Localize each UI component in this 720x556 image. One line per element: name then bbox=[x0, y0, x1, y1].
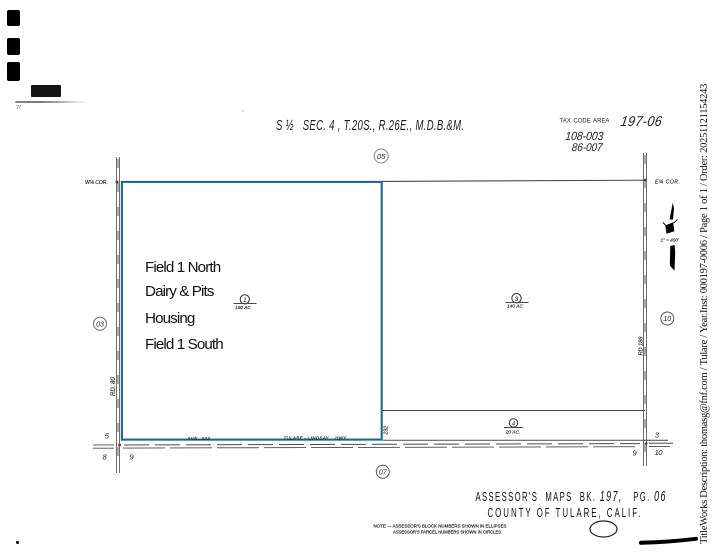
svg-text:NOTE — ASSESSOR'S BLOCK NUMBER: NOTE — ASSESSOR'S BLOCK NUMBERS SHOWN IN… bbox=[374, 523, 507, 528]
svg-text:COUNTY OF TULARE, CALIF.: COUNTY OF TULARE, CALIF. bbox=[488, 506, 643, 520]
svg-text:140 AC: 140 AC bbox=[507, 304, 523, 310]
svg-text:5: 5 bbox=[105, 432, 110, 441]
svg-text:1" = 400': 1" = 400' bbox=[661, 237, 680, 242]
svg-text:10: 10 bbox=[663, 316, 671, 323]
svg-text:TAX CODE AREA: TAX CODE AREA bbox=[560, 119, 610, 125]
svg-text:ASSESSOR'S PARCEL NUMBERS SHOW: ASSESSOR'S PARCEL NUMBERS SHOWN IN CIRCL… bbox=[393, 530, 501, 535]
svg-text:W¼ COR.: W¼ COR. bbox=[85, 180, 108, 186]
svg-text:03: 03 bbox=[96, 321, 104, 328]
svg-text:E¼ COR.: E¼ COR. bbox=[655, 179, 681, 185]
svg-text:AVE. 232: AVE. 232 bbox=[187, 436, 211, 441]
svg-text:197-06: 197-06 bbox=[620, 113, 664, 129]
svg-text:8: 8 bbox=[103, 453, 108, 462]
svg-text:1: 1 bbox=[243, 297, 247, 304]
svg-text:RD. 80: RD. 80 bbox=[111, 377, 117, 396]
svg-text:232: 232 bbox=[384, 426, 390, 436]
svg-text:S ½ SEC. 4 , T.20S., R.26E.,: S ½ SEC. 4 , T.20S., R.26E., M.D.B.&M. bbox=[276, 117, 464, 134]
svg-text:RD 188: RD 188 bbox=[638, 336, 644, 356]
svg-text:ASSESSOR'S MAPS BK. 197, P: ASSESSOR'S MAPS BK. 197, PG. 06 bbox=[476, 488, 667, 505]
svg-text:86-007: 86-007 bbox=[571, 141, 604, 154]
svg-text:TULARE - LINDSAY HWY: TULARE - LINDSAY HWY bbox=[284, 436, 348, 441]
svg-text:9: 9 bbox=[633, 449, 638, 458]
svg-text:160 AC: 160 AC bbox=[235, 305, 251, 311]
svg-text:3: 3 bbox=[655, 432, 659, 439]
svg-text:07: 07 bbox=[379, 470, 388, 477]
svg-text:3: 3 bbox=[515, 296, 519, 303]
svg-text:4: 4 bbox=[512, 420, 516, 427]
svg-text:05: 05 bbox=[377, 152, 386, 161]
svg-text:10: 10 bbox=[655, 448, 664, 457]
svg-text:9: 9 bbox=[130, 453, 135, 462]
svg-text:20 AC.: 20 AC. bbox=[505, 429, 521, 435]
